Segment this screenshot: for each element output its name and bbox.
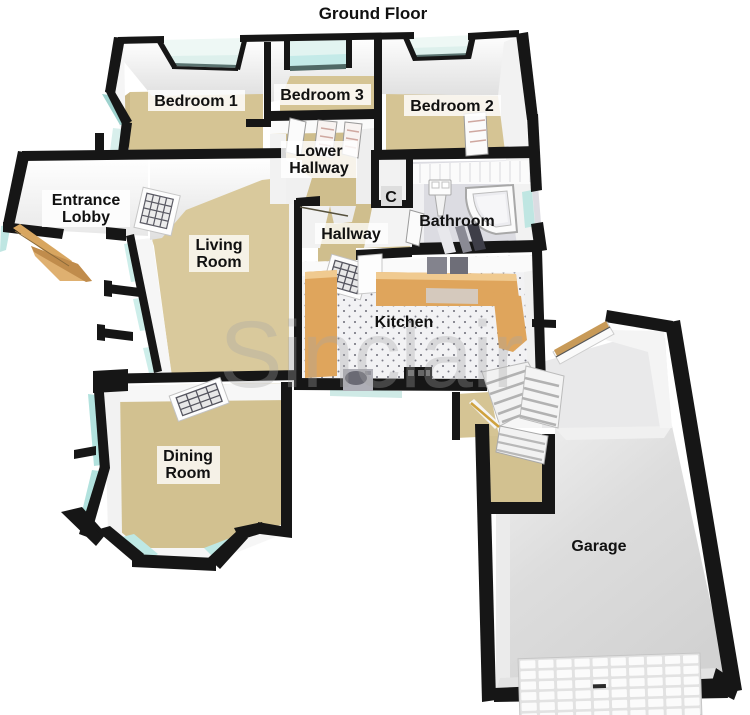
svg-text:Kitchen: Kitchen xyxy=(375,314,434,331)
svg-text:Entrance: Entrance xyxy=(52,192,121,209)
svg-text:Ground Floor: Ground Floor xyxy=(319,4,428,23)
svg-text:Bedroom 1: Bedroom 1 xyxy=(154,93,238,110)
svg-text:Hallway: Hallway xyxy=(321,226,381,243)
svg-text:Bedroom 2: Bedroom 2 xyxy=(410,98,494,115)
svg-text:Hallway: Hallway xyxy=(289,160,349,177)
svg-text:Living: Living xyxy=(195,237,242,254)
svg-text:Garage: Garage xyxy=(571,538,626,555)
svg-text:Lobby: Lobby xyxy=(62,209,110,226)
svg-text:Dining: Dining xyxy=(163,448,213,465)
svg-text:Room: Room xyxy=(165,465,210,482)
svg-text:Room: Room xyxy=(196,254,241,271)
svg-text:Bedroom 3: Bedroom 3 xyxy=(280,87,364,104)
svg-text:Lower: Lower xyxy=(295,143,342,160)
svg-text:Bathroom: Bathroom xyxy=(419,213,495,230)
svg-text:C: C xyxy=(385,189,397,206)
svg-text:Sinclair: Sinclair xyxy=(219,302,523,408)
